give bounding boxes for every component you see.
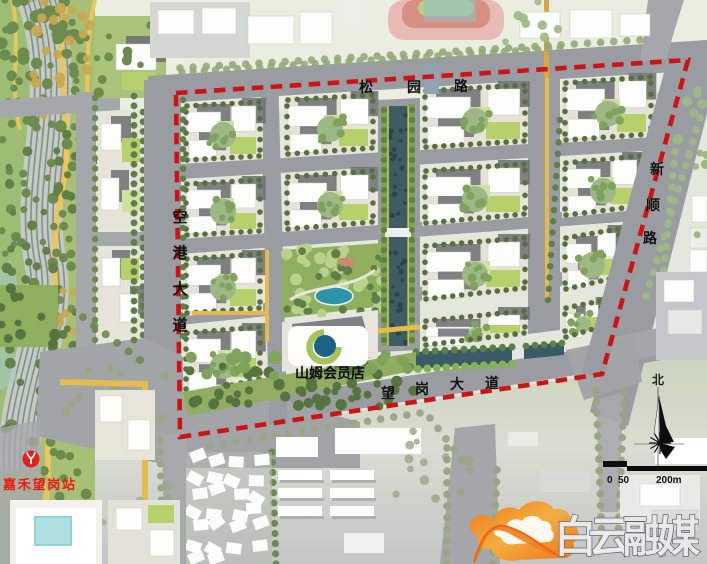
svg-text:0: 0 [607,475,613,486]
svg-text:顺: 顺 [646,197,660,213]
svg-text:港: 港 [172,244,188,262]
svg-text:路: 路 [454,78,469,94]
svg-text:望: 望 [381,385,395,401]
svg-text:路: 路 [643,230,658,246]
svg-text:50: 50 [618,475,630,486]
svg-text:200m: 200m [656,475,682,486]
svg-text:松: 松 [359,79,373,95]
svg-text:园: 园 [407,79,421,95]
svg-text:新: 新 [650,161,664,177]
svg-text:道: 道 [172,316,187,334]
svg-text:白云融媒: 白云融媒 [554,514,701,562]
svg-text:岗: 岗 [415,381,429,397]
svg-text:大: 大 [172,280,187,298]
svg-text:北: 北 [652,372,664,387]
svg-text:嘉禾望岗站: 嘉禾望岗站 [2,477,75,492]
svg-text:空: 空 [172,208,187,226]
svg-text:山姆会员店: 山姆会员店 [295,365,365,381]
svg-text:道: 道 [485,375,499,391]
svg-text:大: 大 [450,376,464,392]
